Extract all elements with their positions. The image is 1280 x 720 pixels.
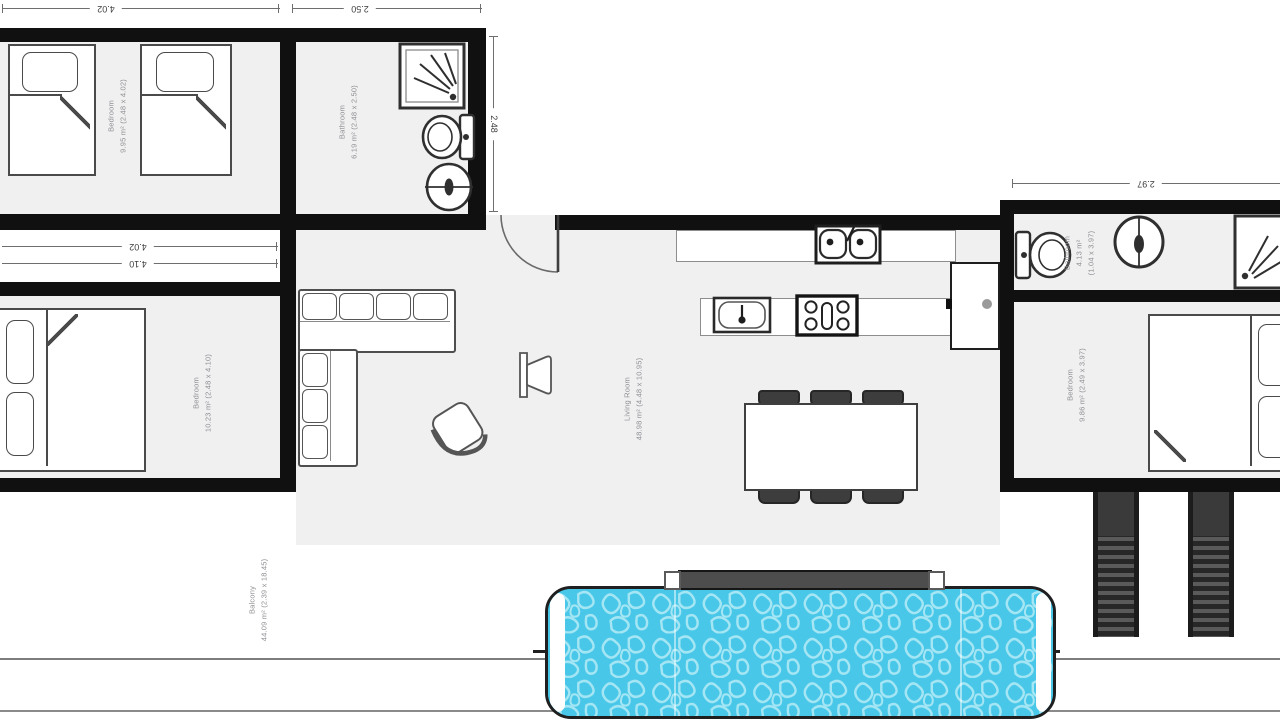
pillow [1258, 396, 1280, 458]
blanket-edge [10, 94, 62, 96]
pillow [6, 392, 34, 456]
wall [280, 28, 296, 492]
bed-single [8, 44, 96, 176]
room-detail: 44.09 m² (2.39 x 18.45) [260, 559, 271, 642]
dimension-tick [2, 4, 3, 13]
toilet [420, 110, 478, 164]
room-label-bedroom-top-left: Bedroom 9.95 m² (2.48 x 4.02) [107, 79, 130, 153]
wall [0, 214, 486, 230]
dimension-tick [292, 4, 293, 13]
wall [555, 215, 1005, 230]
wall [0, 478, 296, 492]
pillow [156, 52, 214, 92]
bed-single [140, 44, 232, 176]
dimension-tick [276, 242, 277, 251]
wall [0, 282, 296, 296]
stove-hob [795, 294, 861, 338]
shower [1232, 212, 1280, 292]
blanket-fold [196, 94, 226, 130]
pillow [22, 52, 78, 92]
kitchen-double-sink [814, 224, 884, 266]
room-area: 4.13 m² [1075, 240, 1086, 267]
dimension-tick [489, 211, 498, 212]
diving-board-mount [928, 571, 945, 590]
dimension-label: 2.97 [1130, 179, 1162, 189]
bed-double [0, 308, 146, 472]
dimension-line [2, 8, 280, 9]
sink [424, 162, 476, 214]
room-name: Balcony [248, 586, 259, 614]
floor-lamp [512, 350, 566, 400]
dimension-tick [278, 4, 279, 13]
dimension-line [292, 8, 482, 9]
blanket-fold [60, 94, 90, 130]
room-name: Bathroom [1063, 236, 1074, 270]
stairs [1093, 492, 1139, 637]
sofa-section-left [298, 349, 358, 467]
dimension-label: 4.10 [122, 259, 154, 269]
wall [0, 28, 486, 42]
pillow [6, 320, 34, 384]
sofa-cushion [302, 293, 337, 320]
dimension-tick [1012, 179, 1013, 188]
room-name: Bathroom [338, 105, 349, 139]
dimension-tick [489, 36, 498, 37]
sofa-cushion [302, 389, 328, 423]
shower [398, 42, 468, 112]
diving-board [678, 570, 932, 590]
sofa-cushion [302, 425, 328, 459]
stairs-landing [1193, 492, 1229, 536]
room-detail: 6.19 m² (2.48 x 2.50) [350, 85, 361, 159]
floor-plan: 4.02 2.50 4.02 4.10 2.48 2.97 [0, 0, 1280, 720]
sofa-cushion [376, 293, 411, 320]
diving-board-mount [664, 571, 681, 590]
dimension-label: 4.02 [90, 4, 122, 14]
dimension-label: 2.48 [489, 108, 499, 140]
island-sink [712, 296, 774, 336]
fridge-hinge [946, 299, 952, 309]
pool-end-cap [1036, 593, 1051, 712]
blanket-edge [142, 94, 198, 96]
pillow [1258, 324, 1280, 386]
dimension-tick [276, 259, 277, 268]
sofa-cushion [339, 293, 374, 320]
door-swing [486, 213, 566, 275]
armchair [422, 394, 496, 470]
pool-end-cap [550, 593, 565, 712]
room-dims: (1.04 x 3.97) [1086, 231, 1097, 276]
room-detail: 48.98 m² (4.48 x 10.95) [635, 358, 646, 441]
bed-double [1148, 314, 1280, 472]
room-label-bathroom-top: Bathroom 6.19 m² (2.48 x 2.50) [338, 85, 361, 159]
stairs-landing [1098, 492, 1134, 536]
blanket-fold [1154, 430, 1186, 462]
sofa-cushion [413, 293, 448, 320]
pool-seam [960, 589, 962, 716]
fridge [950, 262, 1000, 350]
pool-seam [674, 589, 676, 716]
dimension-label: 2.50 [344, 4, 376, 14]
sink [1112, 214, 1168, 272]
stairs [1188, 492, 1234, 637]
sofa-seam [330, 351, 331, 461]
room-name: Bedroom [1066, 369, 1077, 401]
room-detail: 9.95 m² (2.48 x 4.02) [119, 79, 130, 153]
fridge-knob [982, 299, 992, 309]
room-label-bedroom-right: Bedroom 9.86 m² (2.49 x 3.97) [1066, 348, 1089, 422]
room-label-bedroom-left: Bedroom 10.23 m² (2.48 x 4.10) [192, 354, 215, 432]
room-name: Living Room [623, 377, 634, 421]
dimension-label: 4.02 [122, 242, 154, 252]
room-label-balcony: Balcony 44.09 m² (2.39 x 18.45) [248, 559, 271, 642]
room-name: Bedroom [192, 377, 203, 409]
blanket-edge [1250, 316, 1252, 466]
dining-table [744, 403, 918, 491]
sofa-section-top [298, 289, 456, 353]
sofa-seam [300, 321, 450, 322]
dimension-tick [480, 4, 481, 13]
swimming-pool [545, 586, 1056, 719]
wall [1000, 478, 1280, 492]
sofa-cushion [302, 353, 328, 387]
blanket-fold [46, 314, 78, 346]
room-label-bathroom-right: Bathroom 4.13 m² (1.04 x 3.97) [1063, 231, 1098, 276]
room-detail: 9.86 m² (2.49 x 3.97) [1078, 348, 1089, 422]
room-label-living-room: Living Room 48.98 m² (4.48 x 10.95) [623, 358, 646, 441]
room-name: Bedroom [107, 100, 118, 132]
pool-water [548, 589, 1053, 716]
room-detail: 10.23 m² (2.48 x 4.10) [204, 354, 215, 432]
